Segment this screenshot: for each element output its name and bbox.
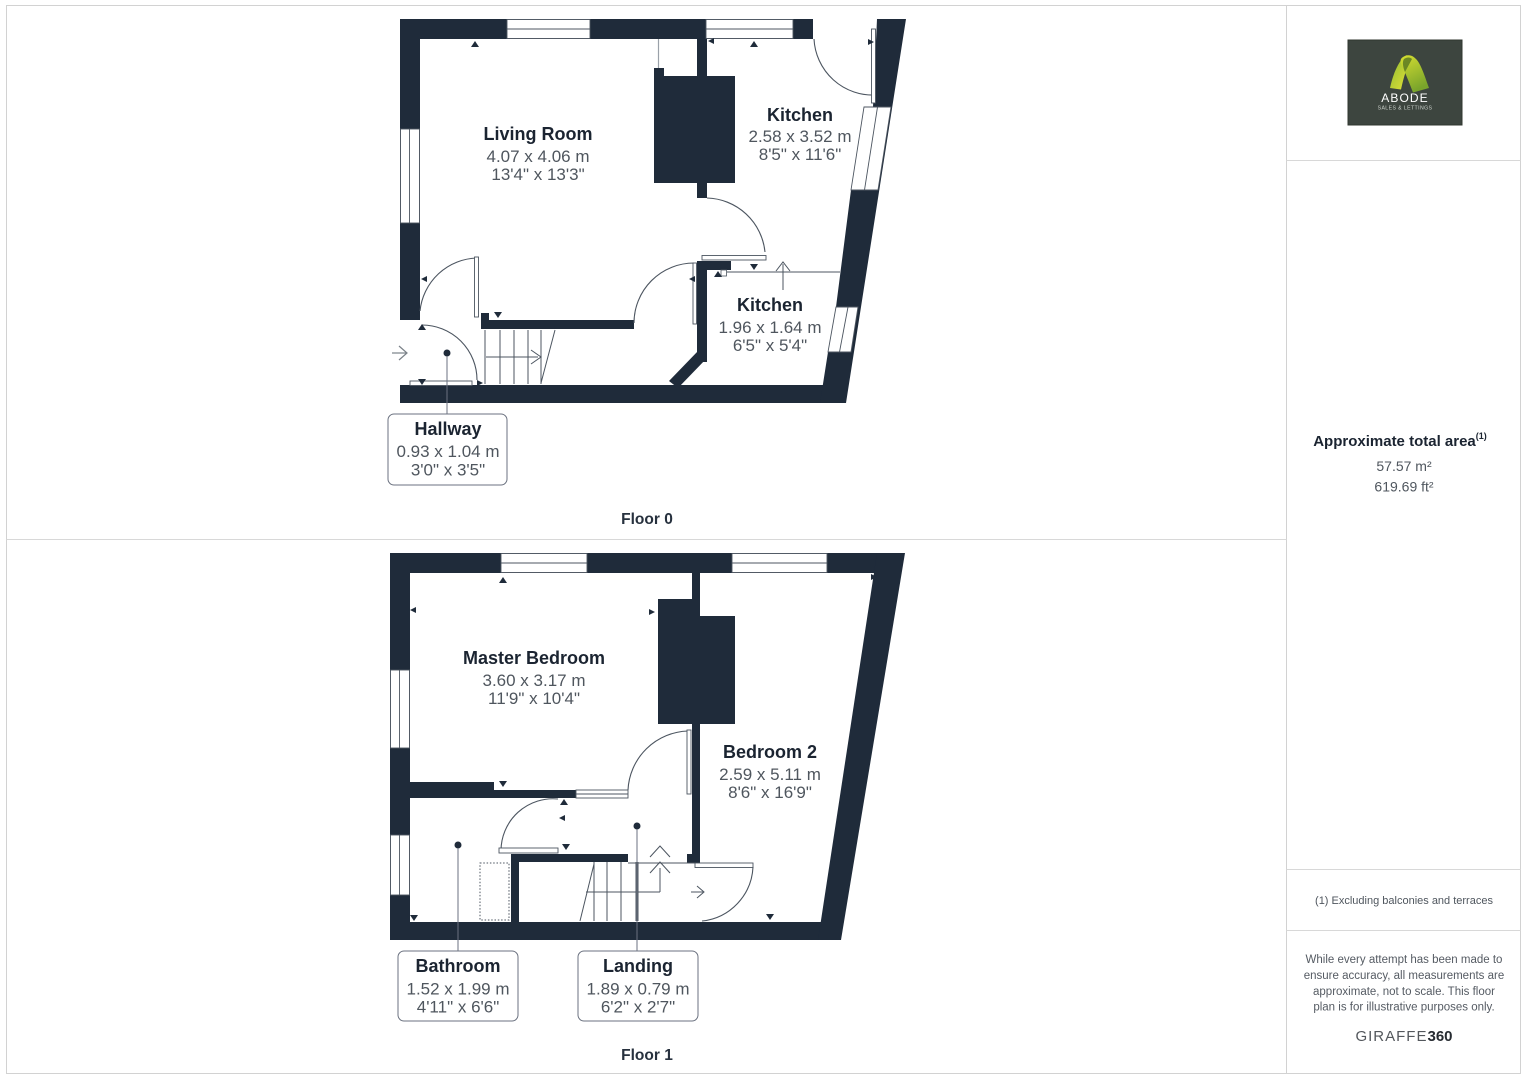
svg-text:ABODE: ABODE: [1381, 91, 1429, 105]
svg-text:plan is for illustrative purpo: plan is for illustrative purposes only.: [1313, 1002, 1494, 1014]
svg-text:8'5" x 11'6": 8'5" x 11'6": [759, 145, 842, 164]
svg-text:Bedroom 2: Bedroom 2: [723, 742, 817, 762]
svg-text:Kitchen: Kitchen: [767, 105, 833, 125]
svg-text:4.07 x 4.06 m: 4.07 x 4.06 m: [486, 147, 589, 166]
svg-text:ensure accuracy, all measureme: ensure accuracy, all measurements are: [1304, 970, 1505, 982]
svg-text:While every attempt has been m: While every attempt has been made to: [1306, 954, 1503, 966]
svg-text:Master Bedroom: Master Bedroom: [463, 648, 605, 668]
svg-text:0.93 x 1.04 m: 0.93 x 1.04 m: [396, 442, 499, 461]
svg-text:Kitchen: Kitchen: [737, 295, 803, 315]
svg-text:6'2" x 2'7": 6'2" x 2'7": [601, 998, 675, 1017]
svg-text:Floor 1: Floor 1: [621, 1047, 673, 1064]
svg-text:2.58 x 3.52 m: 2.58 x 3.52 m: [748, 127, 851, 146]
svg-text:1.96 x 1.64 m: 1.96 x 1.64 m: [718, 318, 821, 337]
svg-text:4'11" x 6'6": 4'11" x 6'6": [417, 998, 500, 1017]
svg-text:SALES & LETTINGS: SALES & LETTINGS: [1378, 106, 1433, 112]
svg-text:Living Room: Living Room: [484, 124, 593, 144]
svg-text:1.89 x 0.79 m: 1.89 x 0.79 m: [586, 980, 689, 999]
svg-text:3.60 x 3.17 m: 3.60 x 3.17 m: [482, 671, 585, 690]
svg-text:13'4" x 13'3": 13'4" x 13'3": [491, 165, 584, 184]
svg-text:3'0" x 3'5": 3'0" x 3'5": [411, 461, 485, 480]
svg-text:1.52 x 1.99 m: 1.52 x 1.99 m: [406, 980, 509, 999]
svg-text:6'5" x 5'4": 6'5" x 5'4": [733, 336, 807, 355]
svg-text:Hallway: Hallway: [414, 419, 481, 439]
svg-text:Landing: Landing: [603, 956, 673, 976]
svg-text:11'9" x 10'4": 11'9" x 10'4": [488, 689, 580, 708]
svg-text:2.59 x 5.11 m: 2.59 x 5.11 m: [719, 765, 821, 784]
svg-text:Bathroom: Bathroom: [416, 956, 501, 976]
svg-text:GIRAFFE360: GIRAFFE360: [1355, 1028, 1452, 1045]
svg-text:8'6" x 16'9": 8'6" x 16'9": [728, 783, 812, 802]
svg-text:Floor 0: Floor 0: [621, 511, 673, 528]
svg-text:approximate, not to scale. Thi: approximate, not to scale. This floor: [1313, 986, 1495, 998]
svg-text:Approximate total area(1): Approximate total area(1): [1313, 431, 1487, 450]
svg-text:(1) Excluding balconies and te: (1) Excluding balconies and terraces: [1315, 895, 1493, 907]
svg-text:57.57 m²: 57.57 m²: [1376, 458, 1432, 474]
svg-text:619.69 ft²: 619.69 ft²: [1374, 479, 1433, 495]
